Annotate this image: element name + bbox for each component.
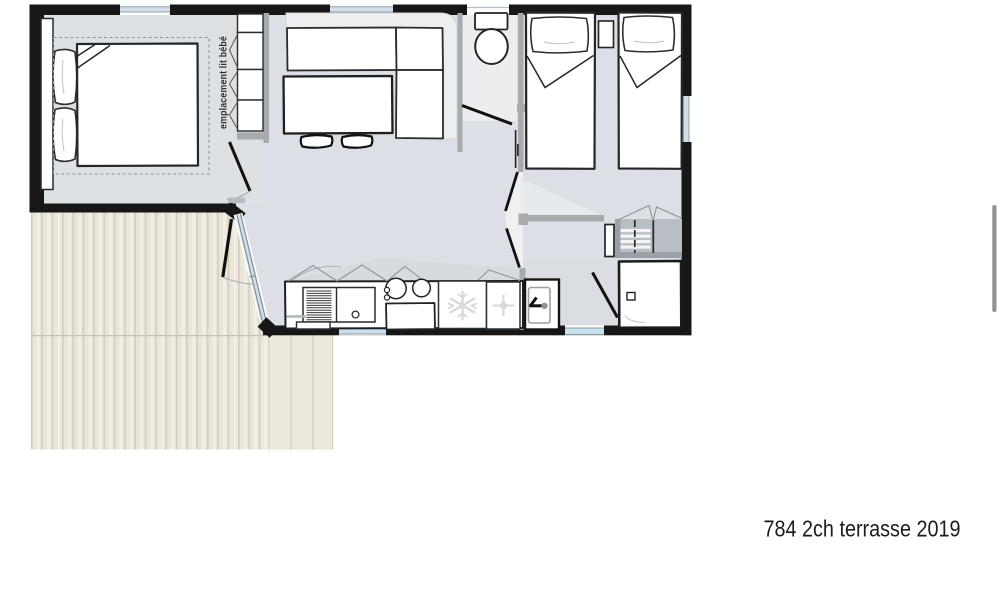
svg-text:784 2ch terrasse 2019: 784 2ch terrasse 2019 bbox=[764, 516, 961, 542]
svg-text:emplacement lit bébé: emplacement lit bébé bbox=[219, 36, 230, 129]
